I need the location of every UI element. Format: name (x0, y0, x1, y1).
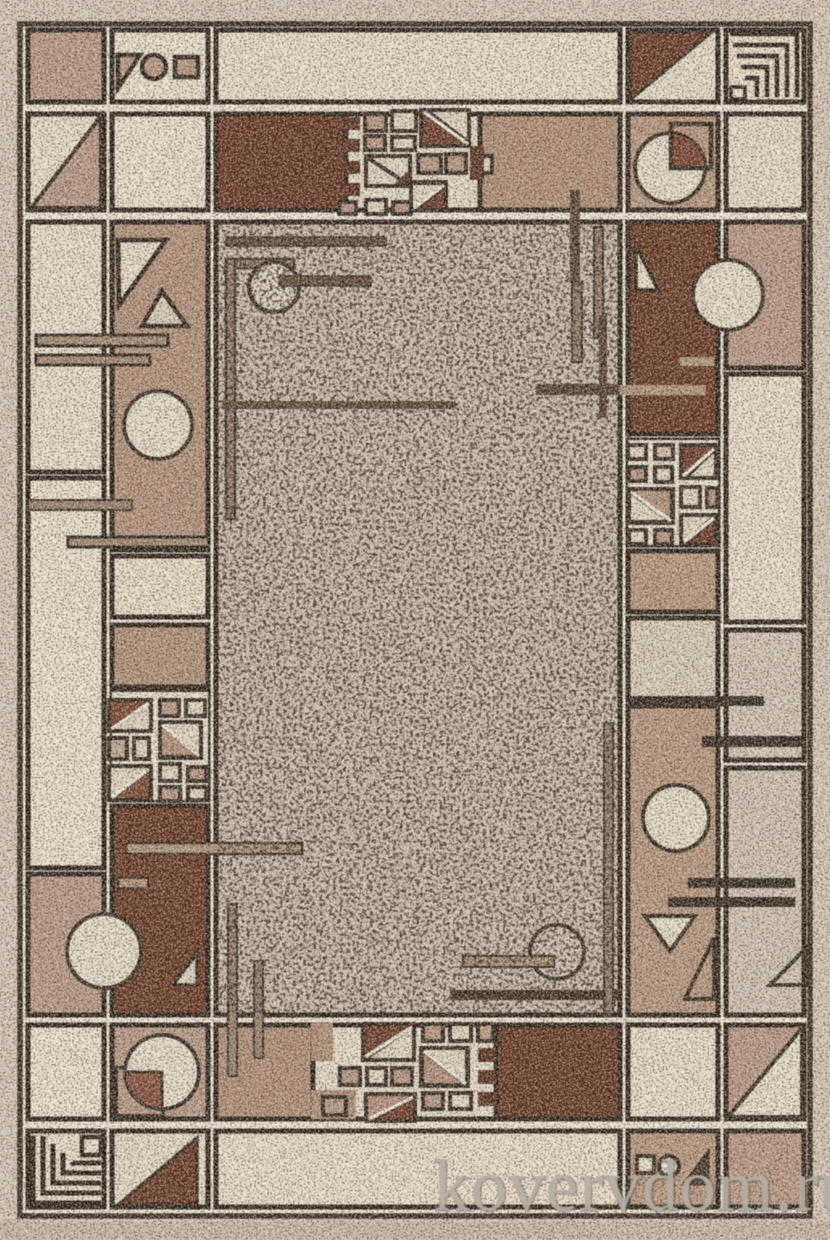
svg-text:kovervdom.ru: kovervdom.ru (433, 1145, 830, 1226)
